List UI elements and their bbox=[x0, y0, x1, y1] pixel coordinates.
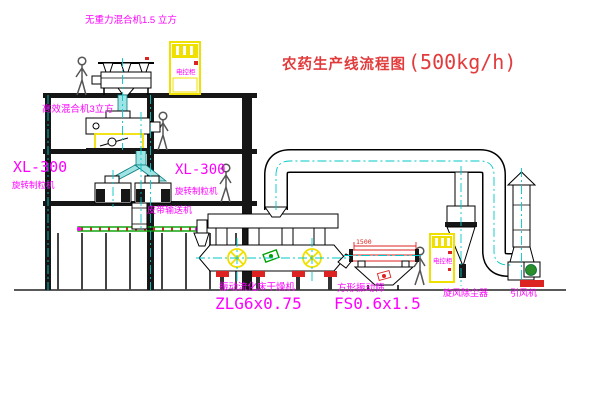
cad-flow-diagram: 农药生产线流程图 (500kg/h) 无重力混合机1.5 立方 高效混合机3立方… bbox=[0, 0, 600, 403]
label-fan: 引风机 bbox=[510, 289, 537, 298]
title-capacity: (500kg/h) bbox=[408, 50, 516, 74]
label-granulator1-name: 旋转制粒机 bbox=[12, 181, 55, 190]
person-roof bbox=[76, 57, 87, 95]
label-top-mixer: 无重力混合机1.5 立方 bbox=[85, 16, 177, 26]
label-cyclone: 旋风除尘器 bbox=[443, 289, 488, 298]
roof-mixer bbox=[92, 57, 154, 95]
label-sieve-model: FS0.6x1.5 bbox=[334, 296, 421, 312]
label-floor2-mixer: 高效混合机3立方 bbox=[42, 105, 114, 115]
fluid-bed-dryer bbox=[194, 214, 354, 290]
label-belt-conveyor: 皮带输送机 bbox=[147, 206, 192, 215]
discharge-pipe bbox=[132, 203, 147, 229]
label-cabinet-2: 电控柜 bbox=[433, 259, 453, 266]
control-cabinet-1 bbox=[170, 42, 200, 94]
duct-branch bbox=[455, 172, 468, 208]
title-text: 农药生产线流程图 bbox=[282, 53, 406, 74]
granulator-2 bbox=[135, 176, 171, 203]
label-cabinet-1: 电控柜 bbox=[176, 70, 196, 77]
diagram-title: 农药生产线流程图 (500kg/h) bbox=[282, 50, 516, 74]
label-granulator2-model: XL-300 bbox=[175, 163, 226, 177]
label-dryer-model: ZLG6x0.75 bbox=[215, 296, 302, 312]
label-sieve-dimension: 1500 bbox=[356, 239, 372, 246]
label-dryer-name: 振动流化床干燥机 bbox=[219, 283, 295, 293]
label-granulator1-model: XL-300 bbox=[13, 160, 67, 175]
feed-pipes bbox=[106, 95, 166, 181]
label-granulator2-name: 旋转制粒机 bbox=[175, 187, 218, 196]
induced-draft-fan bbox=[508, 262, 544, 287]
label-sieve-name: 方形振动筛 bbox=[337, 284, 385, 294]
